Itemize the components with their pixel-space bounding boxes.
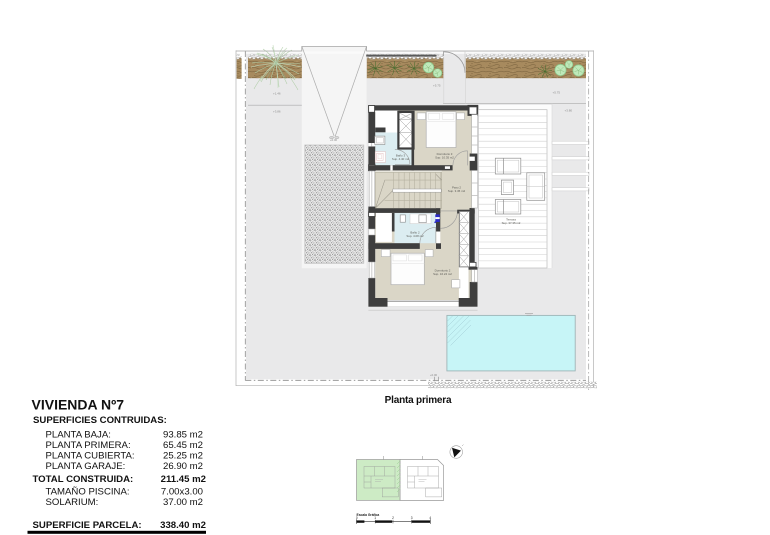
- svg-text:2: 2: [392, 516, 394, 520]
- svg-text:4: 4: [429, 516, 431, 520]
- svg-text:Planta primera: Planta primera: [385, 395, 452, 406]
- svg-text:SOLARIUM:: SOLARIUM:: [46, 497, 99, 508]
- svg-text:+0.00: +0.00: [330, 138, 338, 142]
- svg-text:SUPERFICIE PARCELA:: SUPERFICIE PARCELA:: [33, 520, 142, 531]
- svg-text:1: 1: [374, 516, 376, 520]
- svg-text:25.25 m2: 25.25 m2: [163, 451, 203, 462]
- svg-text:Sup. 3.45 m2: Sup. 3.45 m2: [448, 189, 466, 193]
- svg-text:PLANTA GARAJE:: PLANTA GARAJE:: [46, 461, 126, 472]
- svg-text:SUPERFICIES CONTRUIDAS:: SUPERFICIES CONTRUIDAS:: [33, 415, 167, 426]
- svg-text:PLANTA CUBIERTA:: PLANTA CUBIERTA:: [46, 451, 135, 462]
- svg-text:+5.75: +5.75: [553, 91, 561, 95]
- svg-text:37.00 m2: 37.00 m2: [163, 497, 203, 508]
- svg-text:7.00x3.00: 7.00x3.00: [161, 487, 203, 498]
- svg-text:0: 0: [356, 516, 358, 520]
- svg-text:65.45 m2: 65.45 m2: [163, 440, 203, 451]
- svg-text:Sup. 16.24 m2: Sup. 16.24 m2: [433, 272, 452, 276]
- svg-text:Sup. 37.35 m2: Sup. 37.35 m2: [502, 221, 521, 225]
- svg-text:Sup. 10.35 m2: Sup. 10.35 m2: [435, 156, 454, 160]
- svg-text:+3.80: +3.80: [565, 109, 573, 113]
- svg-text:PLANTA PRIMERA:: PLANTA PRIMERA:: [46, 440, 131, 451]
- svg-text:+3.86: +3.86: [273, 110, 281, 114]
- svg-text:TOTAL CONSTRUIDA:: TOTAL CONSTRUIDA:: [33, 474, 134, 485]
- svg-text:+5.75: +5.75: [433, 84, 441, 88]
- svg-text:Sup. 4.40 m2: Sup. 4.40 m2: [392, 157, 410, 161]
- svg-text:93.85 m2: 93.85 m2: [163, 429, 203, 440]
- svg-text:211.45 m2: 211.45 m2: [161, 474, 206, 485]
- svg-text:26.90 m2: 26.90 m2: [163, 461, 203, 472]
- svg-text:PLANTA BAJA:: PLANTA BAJA:: [46, 429, 111, 440]
- svg-text:TAMAÑO PISCINA:: TAMAÑO PISCINA:: [46, 487, 130, 498]
- svg-text:+1.46: +1.46: [273, 92, 281, 96]
- svg-text:VIVIENDA Nº7: VIVIENDA Nº7: [32, 397, 125, 413]
- svg-text:Sup. 4.08 m2: Sup. 4.08 m2: [406, 234, 424, 238]
- svg-text:+0.00: +0.00: [430, 373, 438, 377]
- svg-text:338.40 m2: 338.40 m2: [160, 520, 206, 531]
- svg-text:3: 3: [411, 516, 413, 520]
